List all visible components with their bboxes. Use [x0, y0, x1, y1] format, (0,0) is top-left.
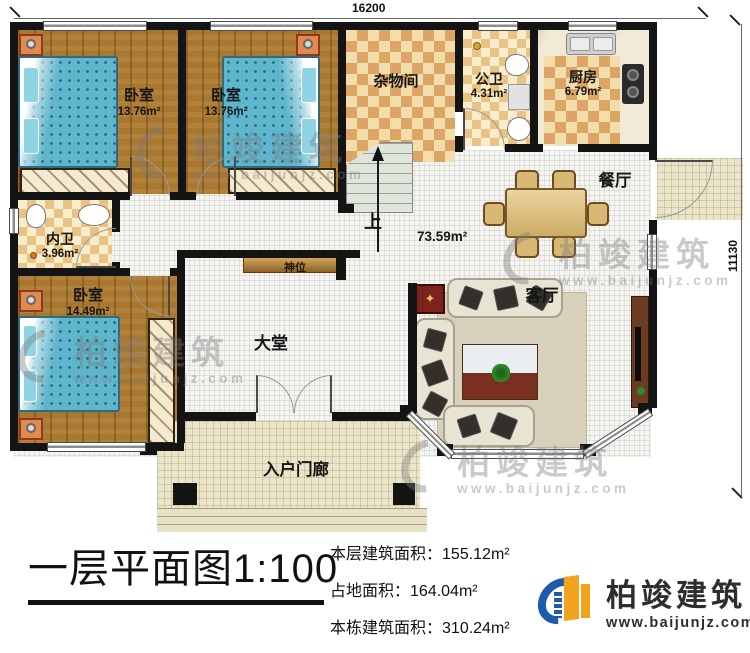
room-name: 餐厅 [599, 172, 632, 190]
stat-label: 本层建筑面积： [330, 546, 442, 563]
dimension-tick [697, 6, 708, 17]
room-name: 卧室 [118, 88, 161, 105]
sink-basin [593, 37, 613, 51]
lamp-icon [26, 39, 36, 49]
wall-segment [185, 412, 256, 421]
room-area: 14.49m² [67, 306, 110, 319]
room-label-living: 客厅 [526, 287, 559, 305]
toilet-icon [26, 204, 46, 228]
room-name: 厨房 [565, 70, 601, 85]
plant-icon [637, 387, 645, 395]
sink-icon [78, 204, 110, 226]
porch-steps [157, 508, 427, 532]
wall-segment [10, 22, 18, 451]
tv-icon [635, 327, 641, 381]
wall-segment [538, 144, 543, 152]
room-label-dining: 餐厅 [599, 172, 632, 190]
dimension-width: 16200 [352, 1, 385, 15]
pillow [23, 325, 37, 357]
wall-segment [338, 204, 354, 213]
logo-building-orange [564, 575, 579, 621]
stair-direction-line [377, 160, 379, 252]
brand-name: 柏竣建筑 [606, 570, 750, 615]
pillow [301, 67, 317, 103]
dining-table [505, 188, 587, 238]
room-label-public-bath: 公卫 4.31m² [471, 72, 507, 101]
window [568, 21, 617, 31]
stat-floor-area: 本层建筑面积：155.12m² [330, 540, 510, 564]
sink-basin [570, 37, 590, 51]
room-label-inner-bath: 内卫 3.96m² [42, 232, 78, 261]
wall-segment [10, 268, 130, 276]
fireplace-cabinet: ✦ [415, 284, 445, 314]
sofa-cushion [421, 359, 449, 387]
sink-icon [507, 117, 531, 141]
stairs-up-label: 上 [364, 208, 382, 234]
dimension-line-top [14, 18, 706, 19]
room-label-bedroom-tl: 卧室 13.76m² [118, 88, 161, 118]
pillow [301, 118, 317, 154]
wardrobe-bedroom-tm [228, 168, 336, 194]
wall-segment [10, 192, 130, 200]
room-name: 大堂 [254, 335, 288, 354]
dining-chair [552, 236, 576, 258]
room-label-storage: 杂物间 [373, 74, 418, 91]
kitchen-sink-icon [566, 33, 616, 55]
lamp-icon [26, 423, 36, 433]
brand-logo-icon [540, 568, 598, 632]
dimension-tick [729, 14, 740, 25]
sofa-cushion [493, 285, 519, 311]
wall-segment [455, 22, 463, 112]
room-label-entry-porch: 入户门廊 [263, 461, 329, 479]
sofa-chaise [443, 405, 535, 447]
wall-segment [332, 412, 410, 421]
wardrobe-bedroom-tl [20, 168, 130, 194]
dimension-line-right [741, 24, 742, 496]
pillow [23, 370, 37, 402]
window [478, 21, 518, 31]
wardrobe-bedroom-bl [148, 318, 175, 444]
brand-url: www.baijunjz.com [606, 615, 750, 631]
stat-value: 155.12m² [442, 546, 510, 563]
stat-value: 164.04m² [410, 583, 478, 600]
bed-bedroom-tl [18, 56, 118, 168]
pillow [23, 118, 39, 154]
shrine-label: 神位 [284, 259, 306, 275]
burner [627, 86, 639, 98]
dining-chair [587, 202, 609, 226]
room-name: 杂物间 [373, 74, 418, 91]
nightstand [19, 290, 43, 312]
stats-block: 本层建筑面积：155.12m² 占地面积：164.04m² 本栋建筑面积：310… [330, 540, 510, 653]
bay-window-front [451, 449, 584, 459]
dimension-height: 11130 [726, 240, 740, 272]
stat-label: 占地面积： [330, 583, 410, 600]
stat-total-area: 本栋建筑面积：310.24m² [330, 614, 510, 638]
floor-drain-icon [30, 252, 37, 259]
room-name: 客厅 [526, 287, 559, 305]
plan-title-text: 一层平面图 [28, 547, 233, 591]
wall-segment [177, 250, 185, 443]
plant-icon [492, 364, 510, 382]
room-name: 卧室 [205, 88, 248, 105]
nightstand [19, 34, 43, 56]
window [647, 234, 657, 270]
room-name: 入户门廊 [263, 461, 329, 479]
wall-segment [649, 268, 657, 408]
watermark-url: www.baijunjz.com [457, 481, 630, 496]
wall-segment [649, 22, 657, 160]
room-area: 4.31m² [471, 88, 507, 101]
stat-value: 310.24m² [442, 620, 510, 637]
wall-segment [178, 22, 186, 200]
burner [627, 69, 639, 81]
room-area: 6.79m² [565, 86, 601, 99]
stat-label: 本栋建筑面积： [330, 620, 442, 637]
wall-segment [338, 22, 346, 212]
toilet-icon [505, 54, 529, 76]
room-area: 13.76m² [205, 106, 248, 119]
coffee-table [462, 344, 538, 400]
up-arrow-icon [372, 146, 384, 161]
wall-segment [170, 192, 196, 200]
logo-building-orange-2 [581, 584, 590, 618]
sofa-cushion [458, 285, 484, 311]
sofa-cushion [456, 413, 481, 438]
dining-chair [483, 202, 505, 226]
wall-segment [185, 250, 360, 258]
room-label-bedroom-tm: 卧室 13.76m² [205, 88, 248, 118]
window [43, 21, 147, 31]
nightstand [296, 34, 320, 56]
bed-bedroom-bl [18, 316, 120, 412]
stove-icon [622, 64, 644, 104]
dimension-tick [9, 6, 20, 17]
stat-land-area: 占地面积：164.04m² [330, 577, 510, 601]
wall-segment [236, 192, 338, 200]
wall-segment [408, 283, 417, 413]
floor-drain-icon [473, 42, 481, 50]
pillow [23, 67, 39, 103]
window [9, 208, 19, 234]
lamp-icon [26, 295, 36, 305]
sofa-cushion [490, 412, 519, 441]
tv-cabinet [631, 296, 649, 408]
wall-segment [10, 443, 52, 451]
wall-segment [336, 250, 346, 280]
window [210, 21, 313, 31]
room-label-kitchen: 厨房 6.79m² [565, 70, 601, 99]
plan-title: 一层平面图1:100 [28, 536, 338, 594]
brand-logo: 柏竣建筑 www.baijunjz.com [540, 568, 750, 632]
plan-scale: 1:100 [233, 547, 338, 591]
room-area: 3.96m² [42, 248, 78, 261]
room-label-bedroom-bl: 卧室 14.49m² [67, 288, 110, 318]
title-underline [28, 600, 324, 605]
floor-plan-page: ✦ [0, 0, 750, 653]
porch-column [393, 483, 415, 505]
sofa-cushion [423, 328, 447, 352]
dining-chair [515, 236, 539, 258]
shower-icon [508, 84, 530, 110]
room-name: 公卫 [471, 72, 507, 87]
room-label-main-hall: 大堂 [254, 335, 288, 354]
room-area: 13.76m² [118, 106, 161, 119]
lamp-icon [303, 39, 313, 49]
logo-building-blue [554, 590, 562, 618]
porch-column [173, 483, 197, 505]
room-name: 内卫 [42, 232, 78, 247]
window [47, 442, 146, 452]
wall-segment [530, 22, 538, 152]
hall-area-label: 73.59m² [417, 229, 467, 244]
room-name: 卧室 [67, 288, 110, 305]
nightstand [19, 418, 43, 440]
title-block: 一层平面图1:100 [28, 536, 338, 605]
wall-segment [505, 144, 538, 152]
wall-segment [578, 144, 657, 152]
wall-segment [455, 136, 463, 152]
